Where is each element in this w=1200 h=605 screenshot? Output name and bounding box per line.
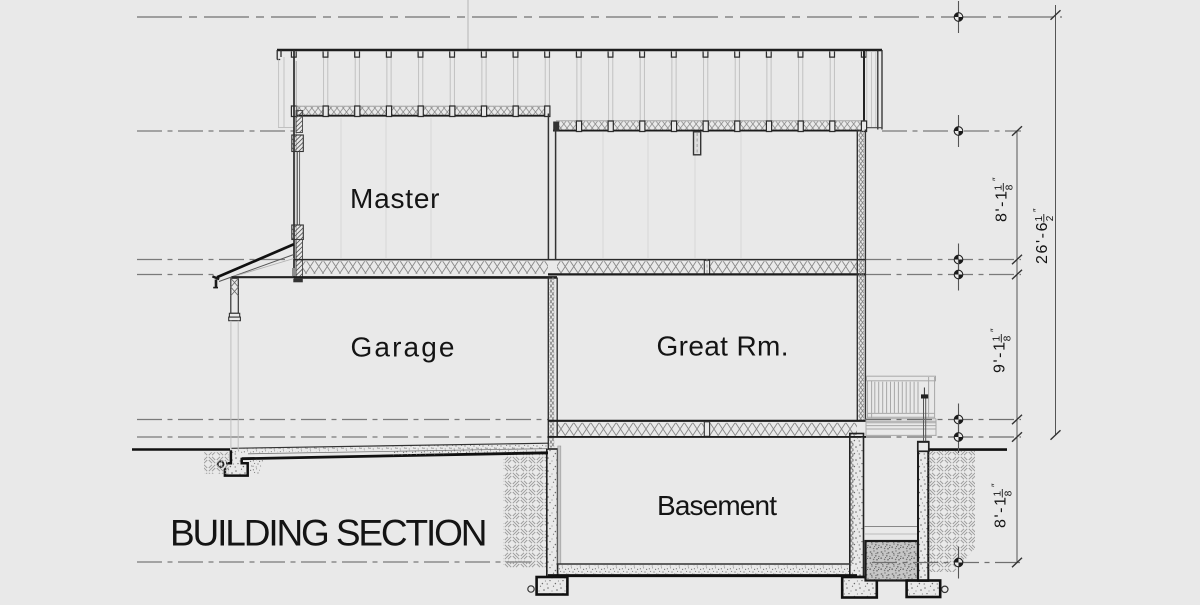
svg-text:8: 8 [1004,490,1015,496]
svg-text:Basement: Basement [657,490,777,521]
svg-text:26'-6: 26'-6 [1034,221,1051,264]
svg-text:8'-1: 8'-1 [993,495,1010,528]
svg-text:8: 8 [1003,335,1014,341]
svg-text:″: ″ [1032,208,1043,212]
svg-text:BUILDING SECTION: BUILDING SECTION [170,513,488,554]
svg-text:Master: Master [350,183,440,214]
svg-text:2: 2 [1045,215,1056,221]
svg-text:8'-1: 8'-1 [994,189,1011,222]
svg-text:″: ″ [992,177,1003,181]
svg-text:″: ″ [990,328,1001,332]
svg-text:Great Rm.: Great Rm. [657,331,789,362]
svg-text:9'-1: 9'-1 [992,340,1009,373]
svg-text:″: ″ [991,483,1002,487]
svg-text:8: 8 [1005,184,1016,190]
